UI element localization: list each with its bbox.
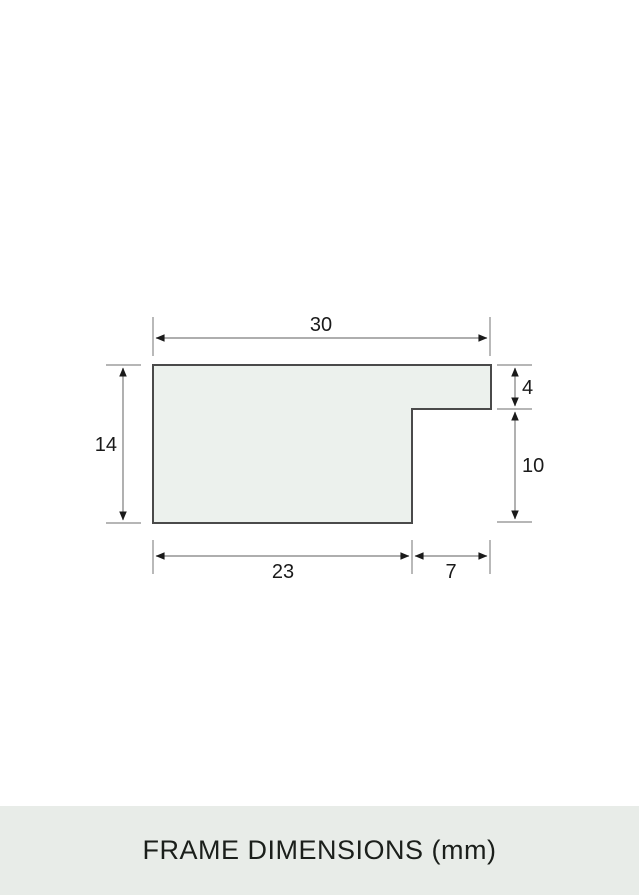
frame-profile-shape bbox=[153, 365, 491, 523]
dim-label-base-width: 23 bbox=[272, 561, 294, 583]
dim-label-rabbet-width: 7 bbox=[445, 561, 456, 583]
footer-bar: FRAME DIMENSIONS (mm) bbox=[0, 806, 639, 895]
page: 30 14 4 10 23 7 FRAME DIMENSIONS (mm) bbox=[0, 0, 639, 895]
diagram-area: 30 14 4 10 23 7 bbox=[0, 0, 639, 806]
footer-title: FRAME DIMENSIONS (mm) bbox=[143, 835, 497, 866]
dim-label-overall-width: 30 bbox=[310, 314, 332, 336]
dim-label-overall-height: 14 bbox=[95, 434, 117, 456]
dim-label-lip-height: 4 bbox=[522, 377, 533, 399]
frame-cross-section-svg: 30 14 4 10 23 7 bbox=[0, 0, 639, 806]
dim-label-rabbet-height: 10 bbox=[522, 455, 544, 477]
